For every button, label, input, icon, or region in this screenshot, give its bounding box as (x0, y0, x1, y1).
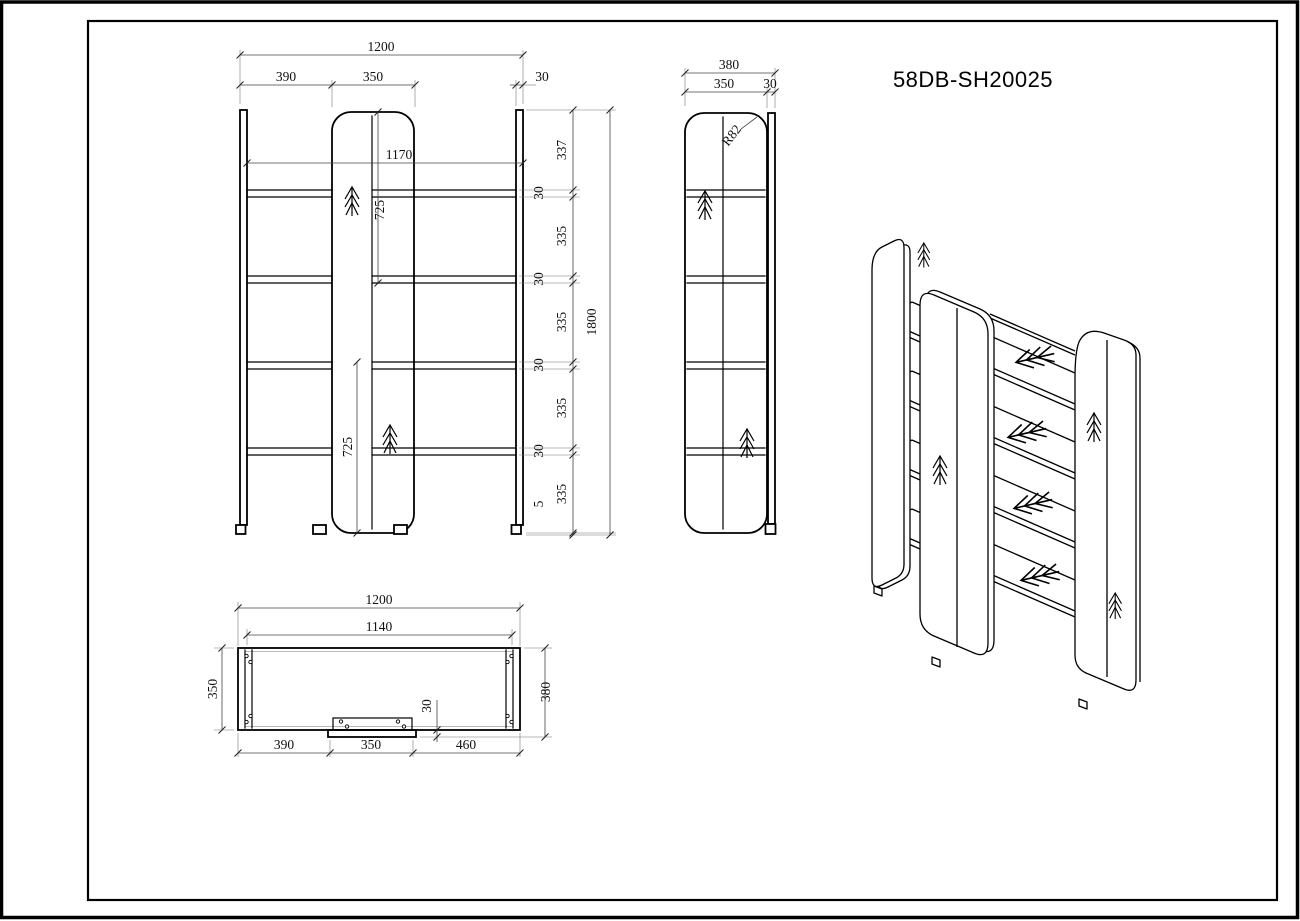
iso-left-panel (872, 240, 904, 587)
side-shelf-edges (687, 190, 765, 455)
dim-plan-panel-depth: 350 (205, 679, 220, 700)
dim-front-chain-6: 335 (554, 398, 569, 419)
front-center-foot-left (313, 525, 326, 534)
iso-top-edge (990, 314, 1075, 355)
dim-plan-seg-center: 350 (361, 737, 382, 752)
dim-front-chain-4: 335 (554, 312, 569, 333)
dim-front-overall-width: 1200 (368, 39, 395, 54)
grain-arrow-icon (918, 243, 930, 268)
dim-front-seg-center: 350 (363, 69, 384, 84)
grain-arrow-icon (383, 425, 397, 454)
dim-front-upper-span: 725 (372, 200, 387, 221)
dim-plan-back-offset: 30 (419, 699, 434, 713)
front-left-panel (240, 110, 247, 525)
dim-front-panel-thickness: 30 (535, 69, 549, 84)
grain-arrow-icon (740, 429, 754, 458)
dim-front-chain-8: 335 (554, 484, 569, 505)
grain-arrow-icon (1019, 562, 1061, 589)
front-view: 1200 390 350 30 1170 725 725 337 30 335 … (236, 39, 616, 539)
grain-arrow-icon (345, 187, 359, 216)
grain-arrow-icon (1006, 419, 1048, 446)
dim-plan-inner-width: 1140 (366, 619, 393, 634)
dim-side-panel-depth: 350 (714, 76, 735, 91)
side-foot (766, 524, 776, 534)
front-shelves (247, 190, 516, 455)
iso-right-panel (1075, 331, 1136, 690)
grain-arrow-icon (1012, 490, 1054, 517)
dim-front-inner-width: 1170 (386, 147, 413, 162)
front-left-foot (236, 525, 246, 534)
plan-view: 1200 1140 350 380 30 390 350 460 (205, 592, 553, 757)
grain-arrow-icon (698, 191, 712, 220)
iso-center-panel (920, 293, 988, 654)
dim-plan-seg-left: 390 (274, 737, 295, 752)
front-right-panel (516, 110, 523, 525)
plan-screws-left (245, 654, 252, 723)
drawing-title: 58DB-SH20025 (893, 67, 1053, 92)
plan-screws-center (339, 720, 405, 728)
dim-front-chain-1: 30 (531, 186, 546, 200)
isometric-view (872, 240, 1140, 709)
front-dim-ticks (237, 52, 614, 539)
plan-inner-lines (246, 652, 512, 727)
dim-plan-overall-depth: 380 (538, 682, 553, 703)
dim-plan-overall-width: 1200 (366, 592, 393, 607)
plan-screws-right (506, 654, 513, 723)
dim-front-lower-span: 725 (340, 437, 355, 458)
front-right-foot (512, 525, 522, 534)
dim-front-chain-2: 335 (554, 226, 569, 247)
dim-front-seg-left: 390 (276, 69, 297, 84)
side-panel-profile (685, 113, 767, 533)
side-view: 380 350 30 R82 (682, 57, 779, 534)
dim-side-back-thickness: 30 (763, 76, 777, 91)
front-extension-lines (240, 50, 616, 535)
front-dimension-lines (240, 55, 610, 535)
dim-front-overall-height: 1800 (584, 308, 599, 335)
dim-front-chain-5: 30 (531, 358, 546, 372)
plan-side-panels (245, 650, 513, 728)
plan-center-panel (333, 718, 412, 730)
front-center-foot-right (394, 525, 407, 534)
dim-front-chain-3: 30 (531, 272, 546, 286)
drawing-sheet: 1200 390 350 30 1170 725 725 337 30 335 … (0, 0, 1300, 921)
dim-side-overall-depth: 380 (719, 57, 740, 72)
front-center-panel (332, 112, 414, 533)
dim-front-chain-7: 30 (531, 444, 546, 458)
dim-front-chain-0: 337 (554, 140, 569, 161)
dim-front-chain-9: 5 (531, 500, 546, 507)
radius-leader-line (741, 117, 757, 129)
plan-center-panel-back (328, 730, 416, 737)
side-back-panel-edge (768, 113, 775, 524)
dim-plan-seg-right: 460 (456, 737, 477, 752)
